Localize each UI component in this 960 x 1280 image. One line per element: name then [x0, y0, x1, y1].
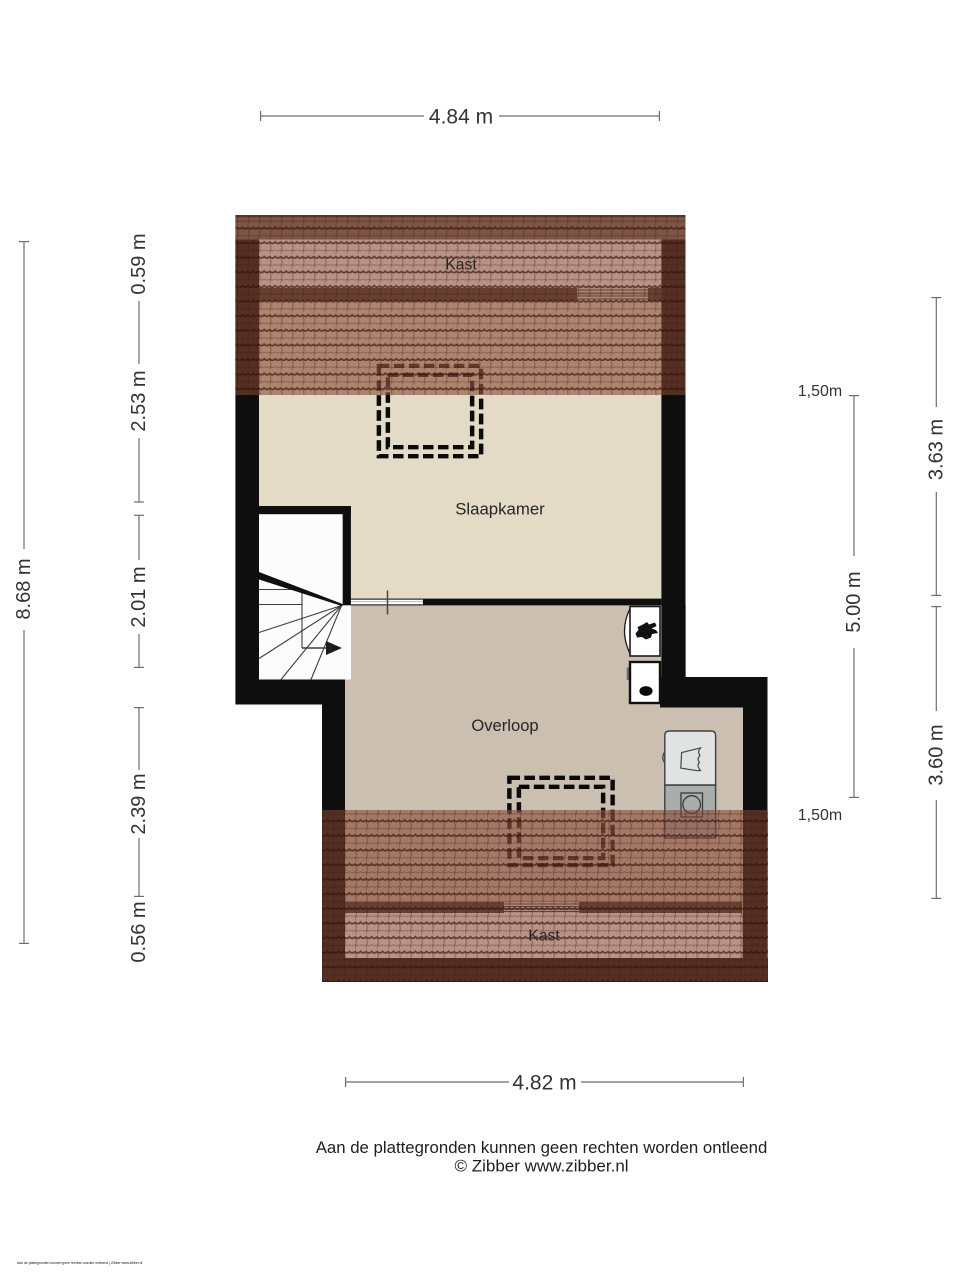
svg-text:3.60 m: 3.60 m [925, 724, 947, 785]
svg-text:4.84 m: 4.84 m [429, 106, 493, 129]
svg-text:0.56 m: 0.56 m [128, 901, 150, 962]
svg-text:Aan de plattegronden kunnen ge: Aan de plattegronden kunnen geen rechten… [316, 1138, 768, 1157]
svg-text:4.82 m: 4.82 m [512, 1072, 576, 1095]
svg-text:Overloop: Overloop [471, 716, 538, 735]
svg-text:8.68 m: 8.68 m [13, 558, 35, 619]
svg-text:1,50m: 1,50m [798, 807, 842, 824]
svg-text:3.63 m: 3.63 m [925, 419, 947, 480]
svg-text:0.59 m: 0.59 m [128, 233, 150, 294]
svg-text:© Zibber www.zibber.nl: © Zibber www.zibber.nl [454, 1157, 628, 1176]
svg-text:Kast: Kast [528, 928, 560, 945]
svg-text:2.01 m: 2.01 m [128, 566, 150, 627]
svg-text:2.39 m: 2.39 m [128, 773, 150, 834]
svg-text:Slaapkamer: Slaapkamer [455, 500, 545, 519]
svg-text:Aan de plattegronden kunnen ge: Aan de plattegronden kunnen geen rechten… [17, 1261, 143, 1265]
svg-text:2.53 m: 2.53 m [128, 370, 150, 431]
svg-text:1,50m: 1,50m [798, 383, 842, 400]
svg-text:Kast: Kast [445, 257, 477, 274]
svg-text:5.00 m: 5.00 m [843, 571, 865, 632]
